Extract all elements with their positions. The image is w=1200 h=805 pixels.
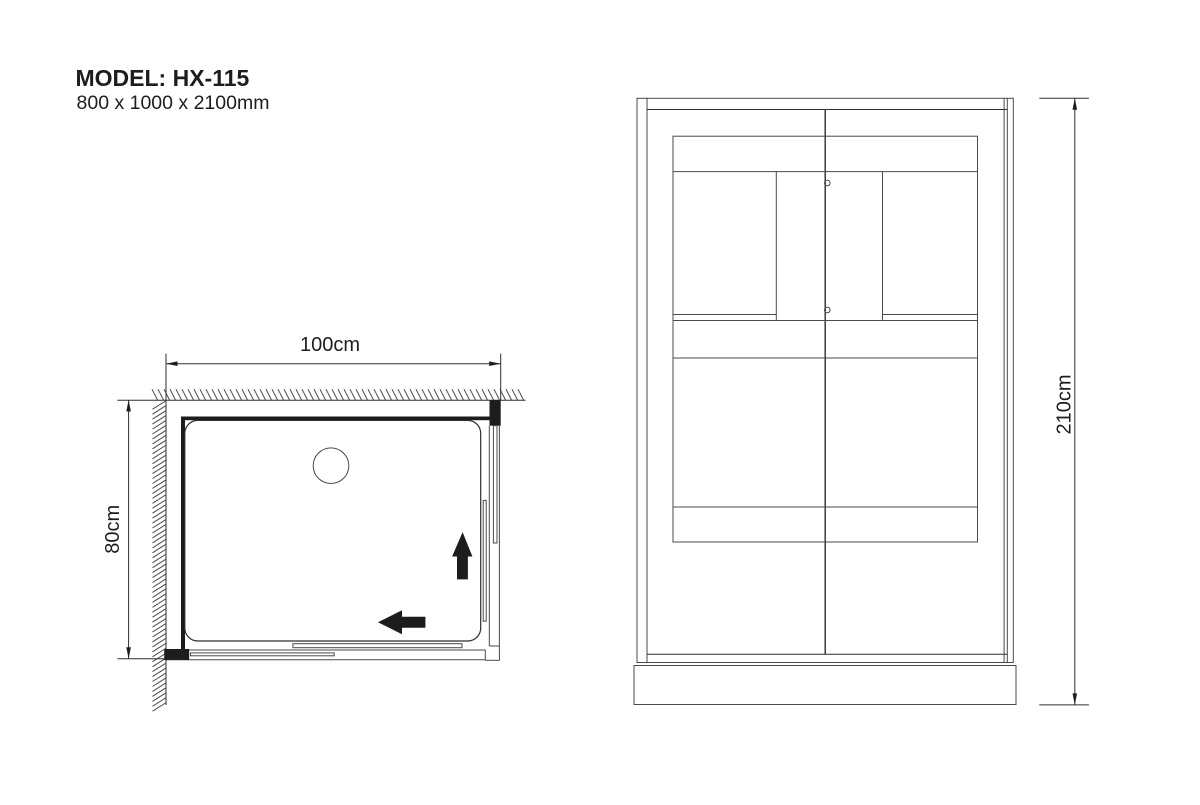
svg-text:MODEL: HX-115: MODEL: HX-115: [76, 65, 250, 91]
svg-text:80cm: 80cm: [102, 505, 124, 554]
svg-text:210cm: 210cm: [1053, 374, 1075, 434]
svg-text:800 x 1000 x 2100mm: 800 x 1000 x 2100mm: [77, 92, 270, 114]
svg-text:100cm: 100cm: [300, 334, 360, 356]
